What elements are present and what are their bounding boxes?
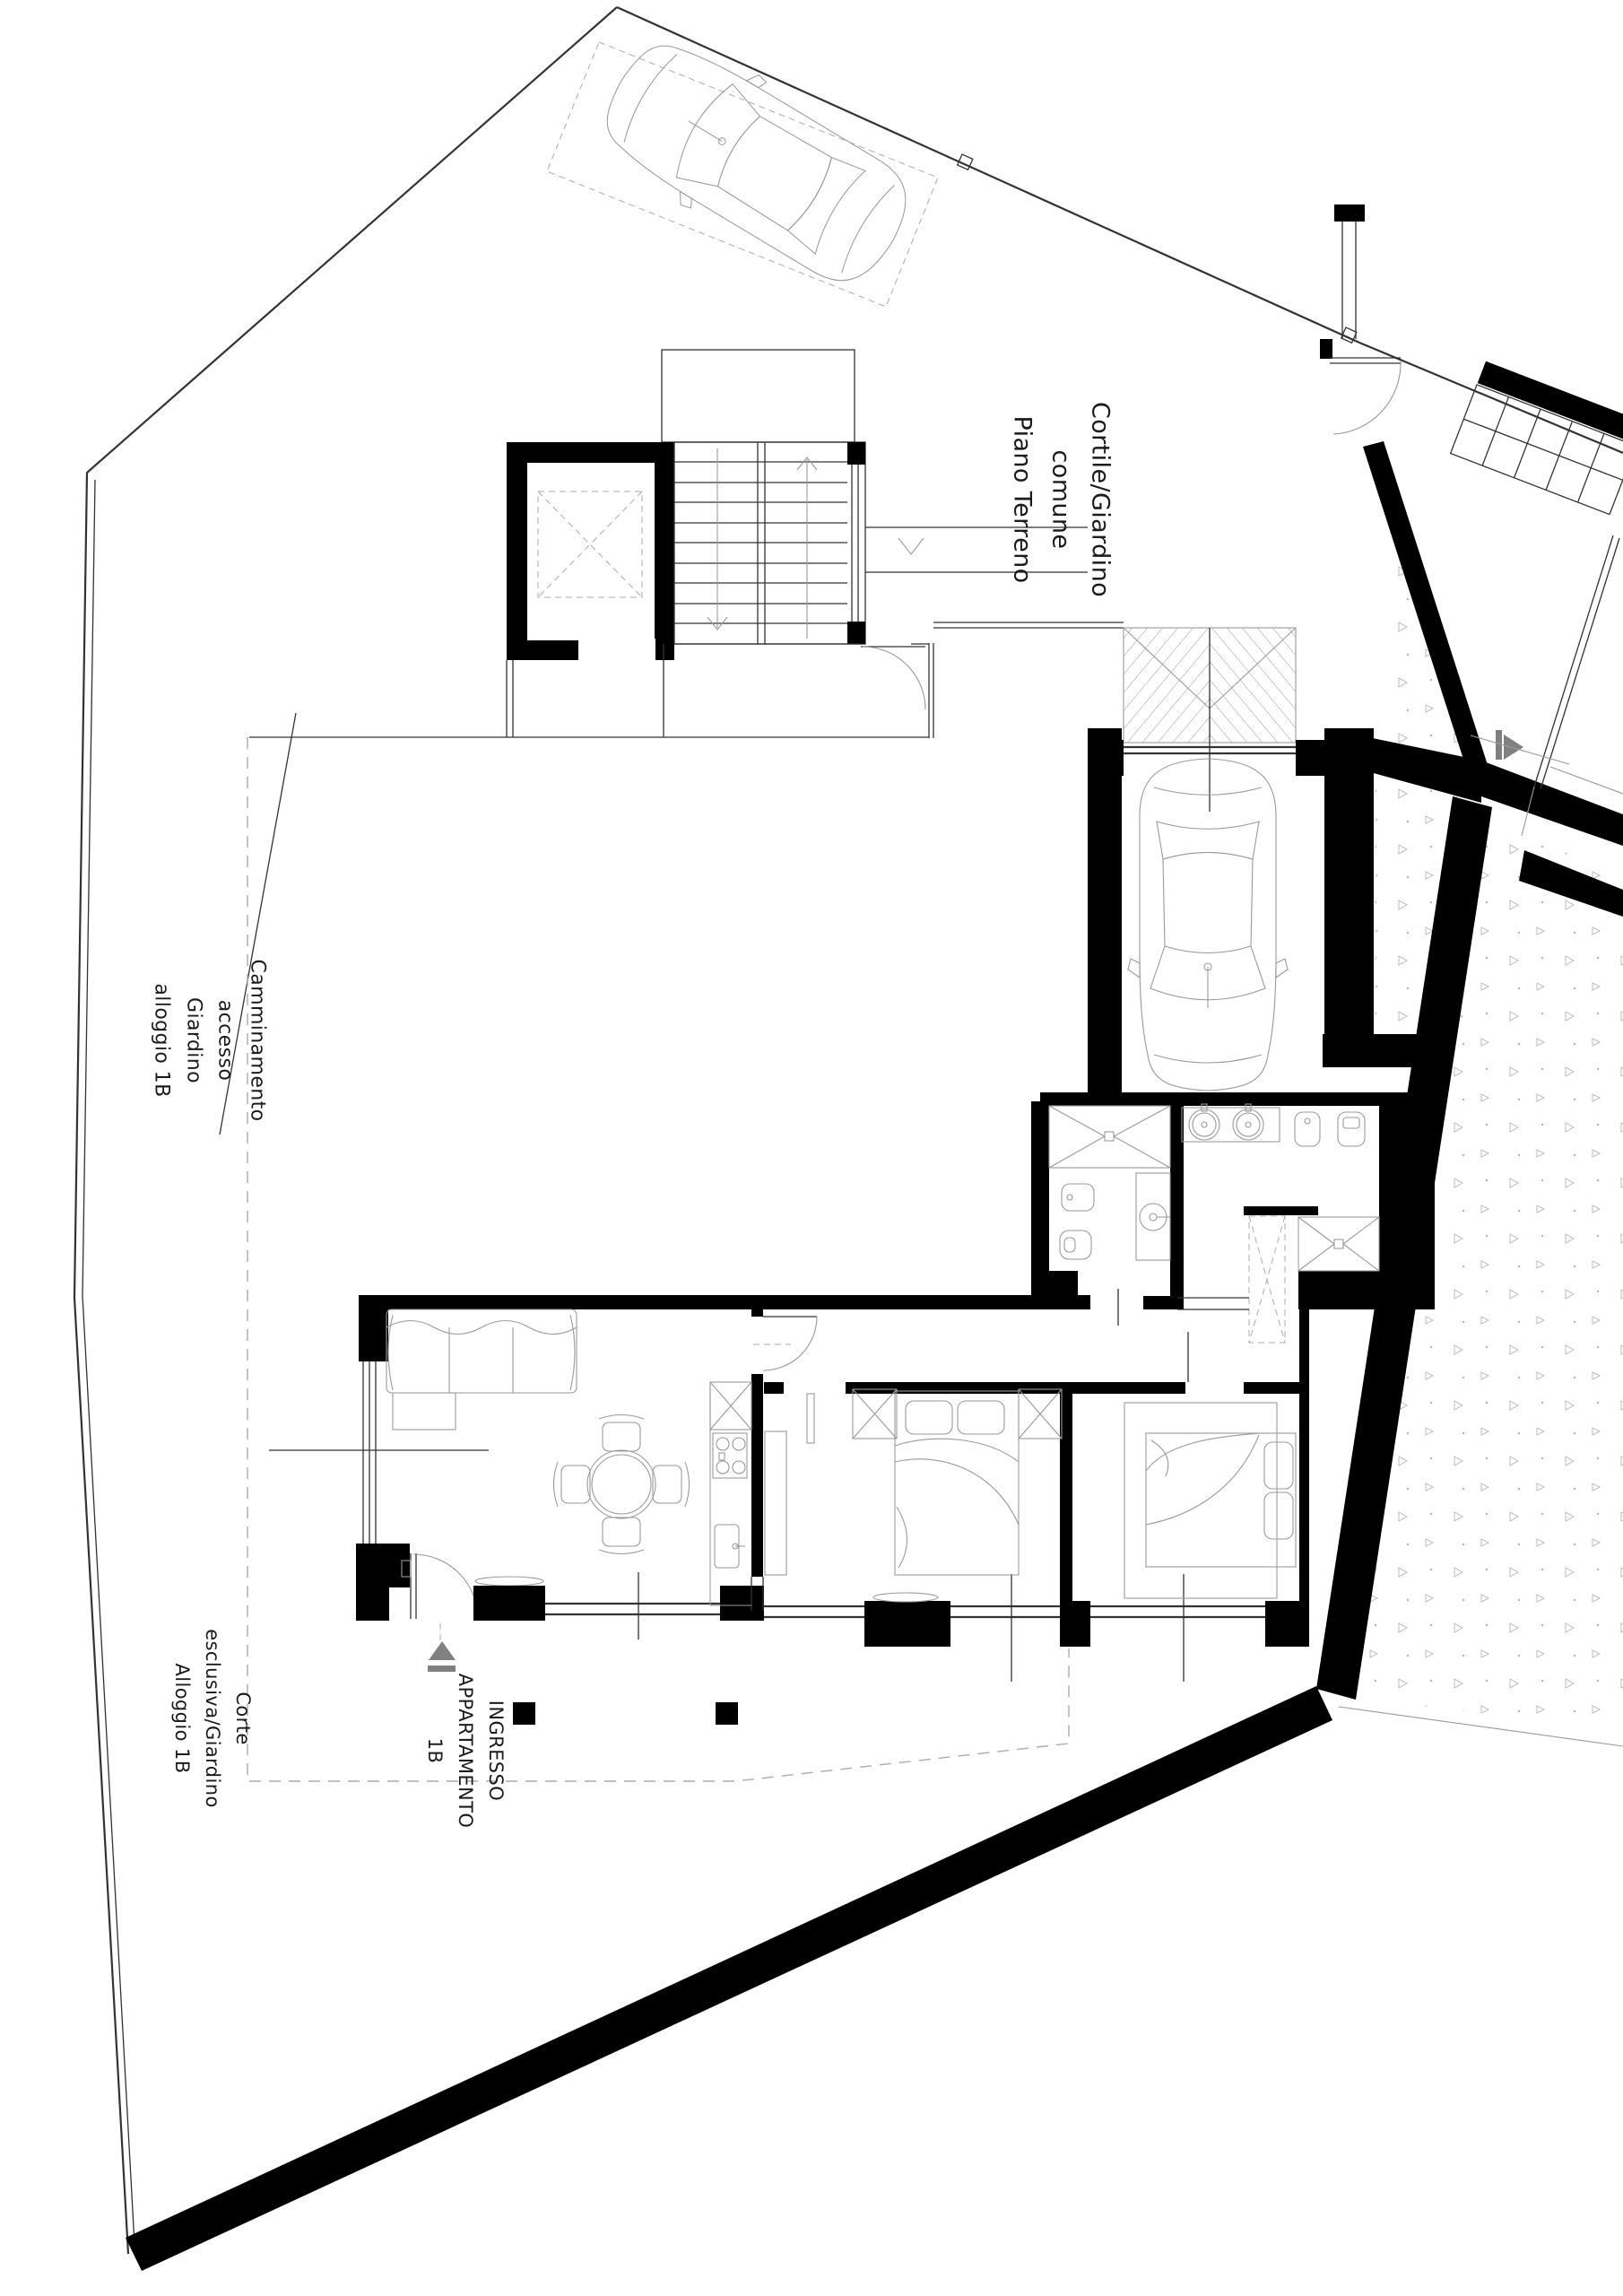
living-room	[386, 1309, 751, 1605]
apartment-walls	[269, 1295, 1309, 1682]
floor-plan-drawing	[0, 0, 1623, 2296]
bathroom-2-fixtures	[1182, 1104, 1379, 1271]
vestibule	[249, 622, 1124, 738]
stair-landing	[662, 350, 855, 442]
kitchen-sink-icon	[715, 1525, 745, 1568]
bathroom-1-fixtures	[1049, 1106, 1170, 1260]
label-walkway: Camminamento accesso Giardino alloggio 1…	[145, 959, 273, 1121]
label-private-courtyard: Corte esclusiva/Giardino Alloggio 1B	[167, 1629, 258, 1807]
vestibule-door	[861, 647, 925, 709]
garage-ramp	[1089, 628, 1332, 812]
staircase	[674, 442, 865, 644]
floor-plan-sheet: Cortile/Giardino comune Piano Terreno Ca…	[0, 0, 1623, 2296]
boundary-wall-south	[126, 1686, 1623, 2271]
pedestrian-gate	[1320, 204, 1401, 434]
sofa	[386, 1309, 577, 1430]
hob-icon	[713, 1433, 747, 1478]
stair-direction-arrows	[707, 448, 817, 639]
double-bed-icon	[1146, 1433, 1296, 1567]
label-apartment-entrance: INGRESSO APPARTAMENTO 1B	[420, 1674, 511, 1829]
bathrooms	[1031, 1092, 1435, 1343]
elevator	[507, 442, 674, 737]
bedroom-2	[1124, 1403, 1296, 1598]
label-common-courtyard: Cortile/Giardino comune Piano Terreno	[1002, 402, 1119, 597]
living-room-door	[763, 1317, 817, 1370]
pergola-post	[716, 1702, 738, 1725]
bidet-icon	[1062, 1184, 1094, 1211]
bidet-icon	[1295, 1112, 1320, 1146]
bedroom-1	[765, 1389, 1062, 1575]
car-top-view	[582, 16, 930, 309]
apartment-entrance-door	[402, 1553, 478, 1643]
kitchen-counter	[710, 1382, 751, 1605]
shower-icon	[1049, 1106, 1170, 1168]
parking-space	[547, 16, 938, 309]
toilet-icon	[1060, 1231, 1091, 1259]
pergola-post	[513, 1702, 535, 1725]
double-sink-counter-icon	[1182, 1104, 1280, 1142]
toilet-icon	[1338, 1112, 1365, 1146]
double-bed-icon	[895, 1391, 1019, 1575]
wardrobe-icon	[1019, 1389, 1062, 1439]
garage-car-top-view	[1128, 759, 1288, 1091]
sliding-door-dashed-x-icon	[1249, 1216, 1285, 1343]
exterior-steps	[1451, 361, 1623, 515]
washbasin-icon	[1136, 1173, 1170, 1260]
shower-icon	[1298, 1217, 1379, 1271]
dining-table	[554, 1415, 690, 1554]
wardrobe-icon	[853, 1389, 897, 1439]
apartment-entrance-arrow-icon	[428, 1641, 456, 1672]
